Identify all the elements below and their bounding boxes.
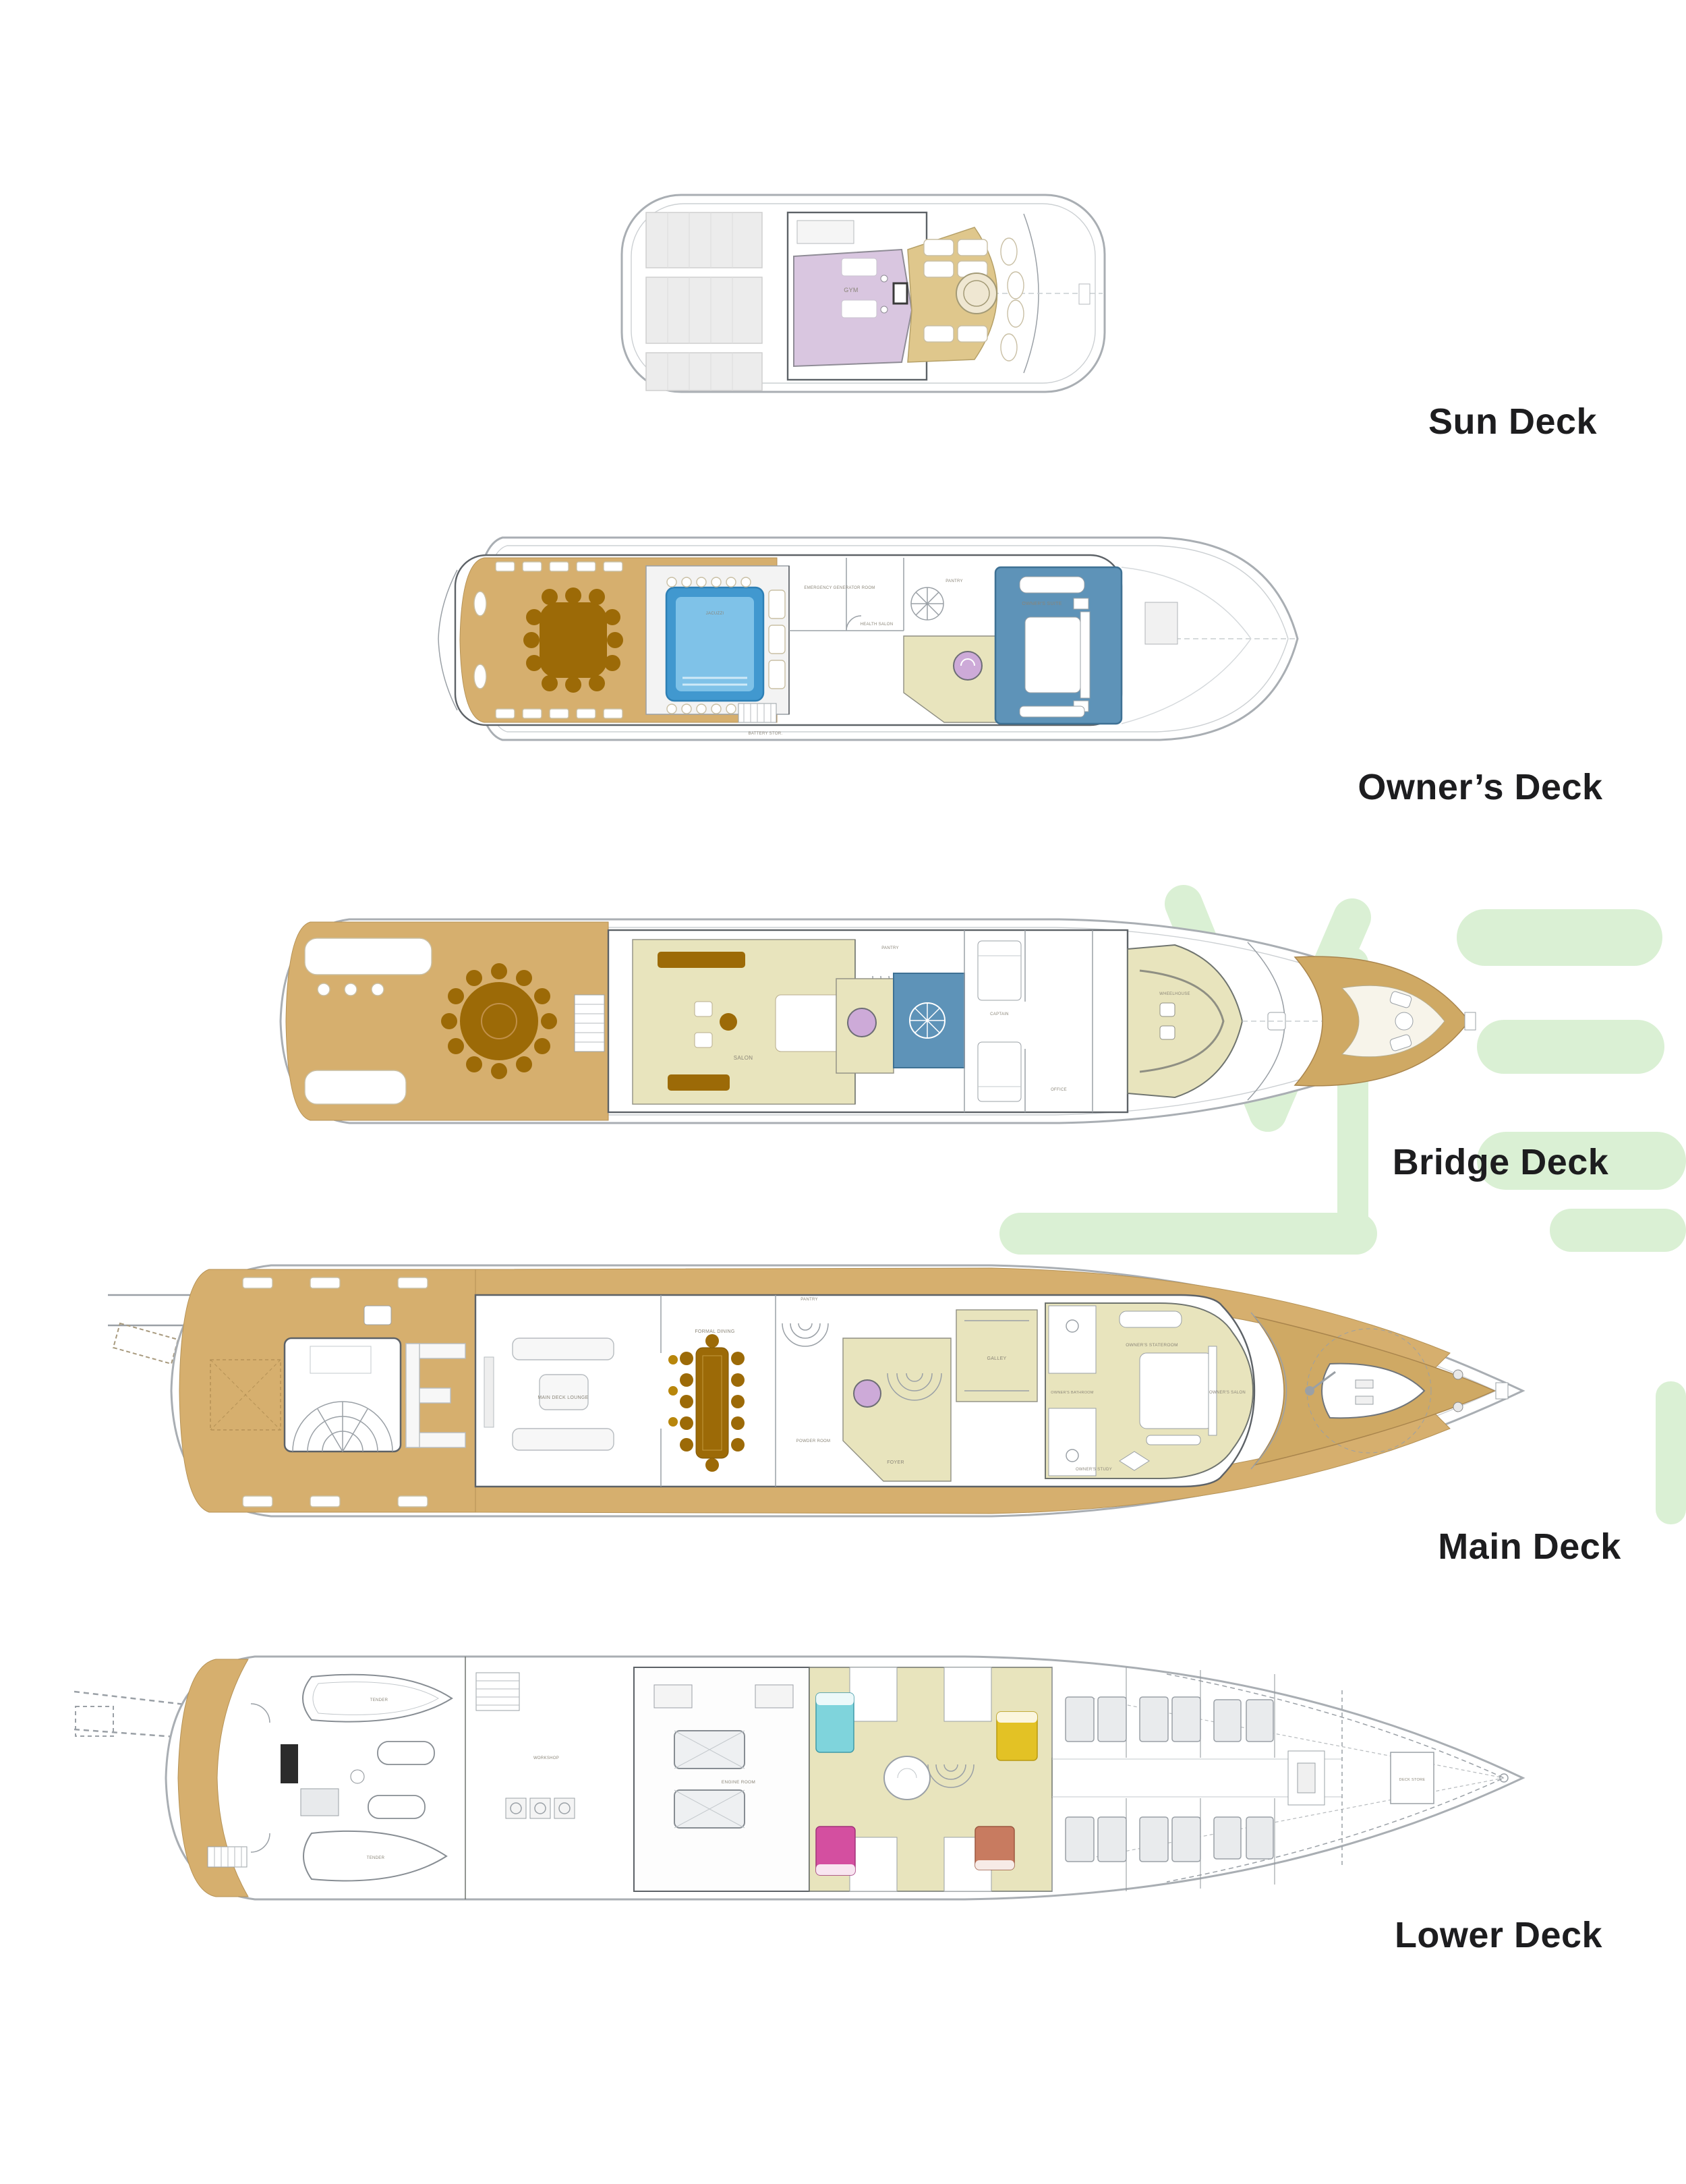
gold-lamp bbox=[668, 1355, 678, 1364]
bathroom bbox=[1049, 1306, 1096, 1373]
pillow bbox=[975, 1860, 1014, 1870]
deck-store-label: DECK STORE bbox=[1399, 1778, 1426, 1782]
tender-seat bbox=[1356, 1396, 1373, 1404]
sun-deck-plan: GYM bbox=[607, 185, 1120, 405]
watermark-stroke bbox=[1656, 1381, 1686, 1524]
captain-label: CAPTAIN bbox=[990, 1012, 1009, 1016]
lower-deck-label: Lower Deck bbox=[1395, 1914, 1602, 1956]
foyer-label: FOYER bbox=[887, 1460, 904, 1465]
elevator bbox=[848, 1008, 876, 1037]
bathroom bbox=[1049, 1408, 1096, 1476]
yacht-deck-plans-page: GYM bbox=[0, 0, 1686, 2184]
room-label: EMERGENCY GENERATOR ROOM bbox=[804, 586, 875, 590]
crew-bunk bbox=[1172, 1817, 1200, 1862]
tender-seat bbox=[1356, 1380, 1373, 1388]
tender-label: TENDER bbox=[367, 1856, 385, 1860]
crew-bunk bbox=[1066, 1697, 1094, 1742]
bridge-deck-label: Bridge Deck bbox=[1393, 1141, 1609, 1183]
suite-label: OWNER'S SUITE bbox=[1022, 602, 1062, 606]
aft-sofa bbox=[305, 1070, 406, 1104]
jetski bbox=[368, 1795, 425, 1818]
sun-pads bbox=[646, 212, 762, 391]
stair-lobby bbox=[894, 973, 964, 1068]
spiral-stair-treads bbox=[911, 587, 943, 620]
tv-cabinet bbox=[484, 1357, 494, 1427]
aft-sofa bbox=[305, 938, 432, 975]
side-table bbox=[345, 983, 357, 996]
watermark-stroke bbox=[1457, 909, 1662, 966]
crew-bunk bbox=[1246, 1700, 1273, 1742]
room-label: PANTRY bbox=[946, 579, 963, 583]
spa-table bbox=[956, 273, 997, 314]
overhang-line bbox=[438, 570, 457, 710]
pillow bbox=[816, 1693, 854, 1705]
bathroom bbox=[850, 1837, 897, 1891]
galley-label: GALLEY bbox=[987, 1356, 1006, 1361]
engine-room: ENGINE ROOM bbox=[634, 1667, 809, 1891]
bridge-deck-plan: SALON PANTRY CAPTAIN OFFICE bbox=[263, 914, 1484, 1133]
bow-locker bbox=[1079, 284, 1090, 304]
crew-bunk bbox=[1140, 1817, 1168, 1862]
crane-post bbox=[351, 1770, 364, 1783]
sun-deck-label: Sun Deck bbox=[1428, 401, 1597, 442]
gym-stool bbox=[881, 306, 888, 313]
room-label: HEALTH SALON bbox=[861, 623, 894, 627]
powder-label: POWDER ROOM bbox=[796, 1439, 831, 1443]
owners-deck-plan: JACUZZI EMERGENCY GENERATOR ROOM HEALTH … bbox=[432, 523, 1315, 759]
wheelhouse-label: WHEELHOUSE bbox=[1159, 992, 1190, 996]
generator bbox=[654, 1685, 692, 1708]
crew-table bbox=[1298, 1763, 1315, 1793]
crew-bunk bbox=[1066, 1817, 1094, 1862]
console bbox=[797, 221, 854, 243]
pillow bbox=[816, 1864, 855, 1875]
capstan bbox=[1453, 1370, 1463, 1379]
gold-lamp bbox=[668, 1417, 678, 1427]
bathroom bbox=[850, 1667, 897, 1721]
office-label: OFFICE bbox=[1051, 1088, 1067, 1092]
pantry-label: PANTRY bbox=[881, 946, 899, 950]
equipment-box bbox=[301, 1789, 339, 1816]
watermark-stroke bbox=[1550, 1209, 1686, 1252]
elevator bbox=[954, 652, 982, 680]
pool: JACUZZI bbox=[666, 587, 763, 701]
main-deck-plan: MAIN DECK LOUNGE FORMAL DINING PANTRY PO… bbox=[108, 1259, 1531, 1532]
beach-stairs bbox=[208, 1847, 247, 1867]
crew-bunk bbox=[1098, 1697, 1126, 1742]
lower-deck-plan: TENDER TENDER WORKSHOP bbox=[74, 1650, 1531, 1912]
lounge-label: MAIN DECK LOUNGE bbox=[537, 1396, 588, 1400]
crew-bunk bbox=[1214, 1817, 1241, 1859]
lobby-elevator bbox=[884, 1756, 930, 1800]
pantry-label: PANTRY bbox=[801, 1298, 818, 1302]
watermark-stroke bbox=[1477, 1020, 1664, 1074]
generator bbox=[755, 1685, 793, 1708]
owners-bed bbox=[1140, 1353, 1213, 1429]
crew-bunk bbox=[1214, 1700, 1241, 1742]
study-label: OWNER'S STUDY bbox=[1076, 1468, 1112, 1472]
tender-label: TENDER bbox=[370, 1698, 388, 1702]
gym-label: GYM bbox=[844, 287, 858, 293]
salon-label: SALON bbox=[734, 1055, 753, 1061]
room-label: BATTERY STOR. bbox=[749, 732, 783, 736]
bathroom bbox=[944, 1667, 991, 1721]
crew-bunk bbox=[1140, 1697, 1168, 1742]
crew-bunk bbox=[1098, 1817, 1126, 1862]
side-table bbox=[372, 983, 384, 996]
capstan bbox=[1453, 1402, 1463, 1412]
crew-bunk bbox=[1172, 1697, 1200, 1742]
bathroom-label: OWNER'S BATHROOM bbox=[1051, 1391, 1094, 1395]
dining-label: FORMAL DINING bbox=[695, 1329, 734, 1334]
stateroom-label: OWNER'S STATEROOM bbox=[1126, 1343, 1178, 1348]
workshop-label: WORKSHOP bbox=[533, 1756, 559, 1760]
jetski bbox=[378, 1742, 434, 1764]
owners-apartment: OWNER'S BATHROOM OWNER'S STATEROOM OWNER… bbox=[1045, 1303, 1253, 1478]
galley: GALLEY bbox=[956, 1310, 1037, 1402]
side-table bbox=[318, 983, 330, 996]
crew-bunk bbox=[1246, 1817, 1273, 1859]
bed bbox=[978, 941, 1021, 1000]
guest-cabins bbox=[809, 1667, 1052, 1891]
laundry-machines bbox=[506, 1798, 575, 1818]
owners-deck-label: Owner’s Deck bbox=[1358, 766, 1602, 808]
watermark-stroke bbox=[999, 1213, 1377, 1255]
gym-bench bbox=[842, 258, 877, 276]
anchor-locker bbox=[1496, 1383, 1508, 1399]
gold-lamp bbox=[668, 1386, 678, 1396]
owners-suite: OWNER'S SUITE bbox=[995, 567, 1122, 724]
elevator bbox=[854, 1380, 881, 1407]
engine-room-label: ENGINE ROOM bbox=[722, 1780, 755, 1785]
sofa bbox=[1120, 1311, 1182, 1327]
main-deck-label: Main Deck bbox=[1438, 1526, 1621, 1568]
jacuzzi-label: JACUZZI bbox=[706, 612, 724, 616]
gym-tv bbox=[894, 283, 907, 304]
gym-bench bbox=[842, 300, 877, 318]
aft-stair-structure bbox=[285, 1338, 401, 1452]
gym-stool bbox=[881, 275, 888, 282]
hatch bbox=[281, 1744, 298, 1783]
mast-platform bbox=[1145, 602, 1178, 644]
salon-label: OWNER'S SALON bbox=[1209, 1391, 1246, 1395]
pillow bbox=[997, 1712, 1037, 1723]
bed-bench bbox=[1146, 1435, 1200, 1445]
bed bbox=[978, 1042, 1021, 1101]
salon: SALON bbox=[633, 940, 855, 1104]
